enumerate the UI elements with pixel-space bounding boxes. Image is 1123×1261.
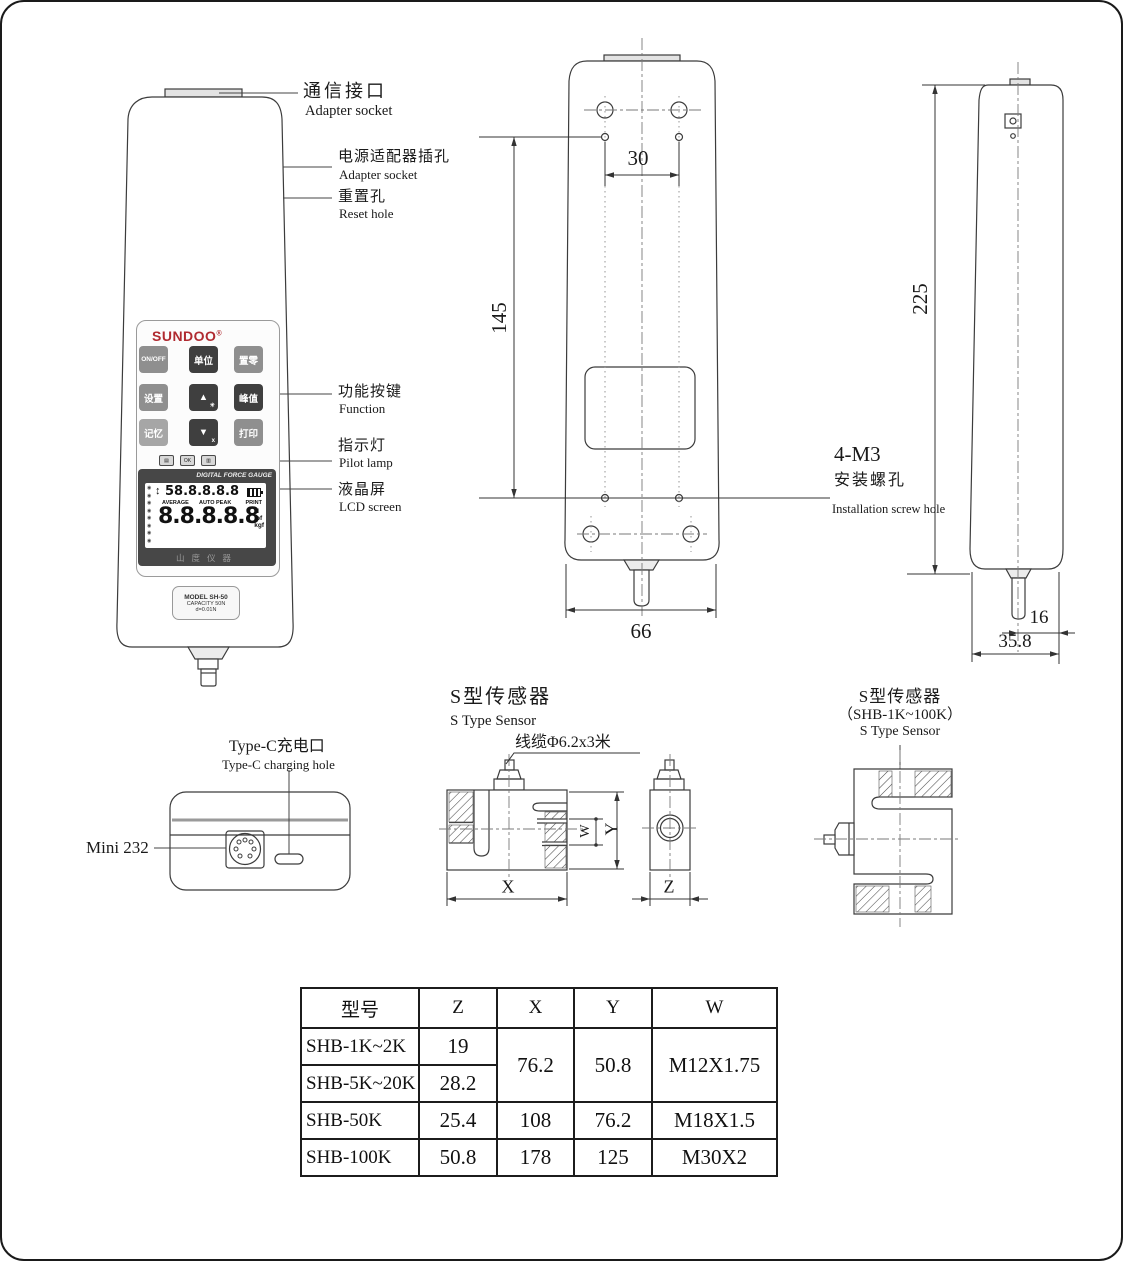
dim-rear-width: 66: [631, 619, 652, 643]
callout-lcd-en: LCD screen: [339, 500, 401, 515]
spec-table: 型号 Z X Y W SHB-1K~2K 19 76.2 50.8 M12X1.…: [300, 987, 778, 1177]
updown-arrow-icon: ↕: [155, 485, 161, 497]
dim-sensor-z: Z: [664, 877, 675, 898]
dim-shaft-offset: 16: [1030, 607, 1049, 629]
sensor-section-title: S型传感器 （SHB-1K~100K） S Type Sensor: [824, 687, 976, 740]
table-row: SHB-1K~2K 19 76.2 50.8 M12X1.75: [301, 1028, 777, 1065]
lcd-units: N lbf kgf: [254, 508, 264, 529]
lcd-segment-icons: ◉◉ ◉◉ ◉◉ ◉◉: [147, 485, 151, 545]
callout-screw-en: Installation screw hole: [832, 502, 945, 516]
lcd-top-reading: 58.8.8.8.8: [165, 484, 239, 499]
keypad-button-memory: 记忆: [139, 419, 168, 446]
lcd-title: DIGITAL FORCE GAUGE: [142, 472, 272, 479]
keypad-button-up: ▲☀: [189, 384, 218, 411]
backlight-icon: ☀: [210, 402, 215, 409]
header-y: Y: [574, 988, 652, 1028]
callout-comm-port-en: Adapter socket: [305, 103, 392, 120]
keypad-button-zero: 置零: [234, 346, 263, 373]
cell-z: 28.2: [419, 1065, 497, 1102]
cell-z: 50.8: [419, 1139, 497, 1176]
header-model: 型号: [301, 988, 419, 1028]
dim-sensor-x: X: [502, 877, 515, 898]
lcd-footer-text: 山度仪器: [142, 552, 272, 564]
keypad-button-print: 打印: [234, 419, 263, 446]
model-label: MODEL SH-50 CAPACITY 50N d=0.01N: [172, 586, 240, 620]
keypad-button-on-off: ON/OFF: [139, 346, 168, 373]
cell-y: 50.8: [574, 1028, 652, 1102]
callout-typec-en: Type-C charging hole: [222, 758, 335, 773]
clear-x-icon: x: [212, 438, 215, 444]
cell-y: 125: [574, 1139, 652, 1176]
bottom-view-drawing: [154, 770, 350, 890]
diagram-canvas: SUNDOO® ON/OFF 单位 置零 设置 ▲☀ 峰值 记忆 ▼x 打印 ▤…: [0, 0, 1123, 1261]
lcd-screen: ◉◉ ◉◉ ◉◉ ◉◉ ↕ 58.8.8.8.8 AVERAGE AUTO PE…: [145, 483, 266, 548]
brand-logo: SUNDOO®: [152, 328, 222, 344]
sensor-section-drawing: [824, 745, 952, 914]
callout-comm-port-zh: 通信接口: [303, 81, 387, 102]
header-w: W: [652, 988, 777, 1028]
sensor-section-title-zh: S型传感器: [824, 687, 976, 707]
cell-w: M18X1.5: [652, 1102, 777, 1139]
side-view-drawing: [970, 79, 1063, 619]
header-x: X: [497, 988, 574, 1028]
indicator-lamp-charge: ▥: [201, 455, 216, 466]
sensor-front-drawing: [447, 760, 690, 870]
dim-sensor-y: Y: [602, 823, 623, 836]
callout-screw-zh: 安装螺孔: [834, 472, 906, 490]
callout-mini232: Mini 232: [86, 838, 149, 858]
cell-y: 76.2: [574, 1102, 652, 1139]
keypad-button-set: 设置: [139, 384, 168, 411]
cell-x: 76.2: [497, 1028, 574, 1102]
callout-lcd-zh: 液晶屏: [338, 482, 386, 499]
cell-model: SHB-100K: [301, 1139, 419, 1176]
dim-hole-spacing: 30: [628, 146, 649, 170]
callout-adapter-zh: 电源适配器插孔: [338, 149, 450, 166]
callout-function-zh: 功能按键: [338, 384, 402, 401]
indicator-lamp-ok: OK: [180, 455, 195, 466]
sensor-front-title-en: S Type Sensor: [450, 713, 536, 730]
callout-reset-zh: 重置孔: [338, 189, 386, 206]
dim-side-width: 35.8: [998, 631, 1031, 653]
sensor-front-title-zh: S型传感器: [450, 686, 551, 709]
cell-model: SHB-50K: [301, 1102, 419, 1139]
cell-z: 25.4: [419, 1102, 497, 1139]
lcd-main-reading: 8.8.8.8.8: [158, 504, 259, 529]
battery-icon: [247, 488, 261, 497]
callout-screw-title: 4-M3: [834, 442, 881, 466]
dim-sensor-w: W: [578, 824, 594, 837]
dim-side-height: 225: [908, 283, 932, 315]
keypad-button-peak: 峰值: [234, 384, 263, 411]
cell-x: 178: [497, 1139, 574, 1176]
cell-w: M12X1.75: [652, 1028, 777, 1102]
keypad-button-down: ▼x: [189, 419, 218, 446]
callout-typec-zh: Type-C充电口: [229, 738, 325, 756]
dim-rear-height: 145: [487, 302, 511, 334]
spec-header-row: 型号 Z X Y W: [301, 988, 777, 1028]
keypad-button-unit: 单位: [189, 346, 218, 373]
callout-function-en: Function: [339, 402, 385, 417]
cell-w: M30X2: [652, 1139, 777, 1176]
sensor-cable-label: 线缆Φ6.2x3米: [515, 734, 611, 752]
callout-pilot-zh: 指示灯: [338, 438, 386, 455]
table-row: SHB-50K 25.4 108 76.2 M18X1.5: [301, 1102, 777, 1139]
header-z: Z: [419, 988, 497, 1028]
indicator-lamp-1: ▤: [159, 455, 174, 466]
cell-x: 108: [497, 1102, 574, 1139]
cell-model: SHB-5K~20K: [301, 1065, 419, 1102]
cell-z: 19: [419, 1028, 497, 1065]
callout-pilot-en: Pilot lamp: [339, 456, 393, 471]
cell-model: SHB-1K~2K: [301, 1028, 419, 1065]
table-row: SHB-100K 50.8 178 125 M30X2: [301, 1139, 777, 1176]
callout-adapter-en: Adapter socket: [339, 168, 417, 183]
sensor-section-title-en: S Type Sensor: [824, 724, 976, 740]
sensor-section-title-range: （SHB-1K~100K）: [824, 707, 976, 724]
callout-reset-en: Reset hole: [339, 207, 394, 222]
lcd-bezel: DIGITAL FORCE GAUGE ◉◉ ◉◉ ◉◉ ◉◉ ↕ 58.8.8…: [138, 469, 276, 566]
